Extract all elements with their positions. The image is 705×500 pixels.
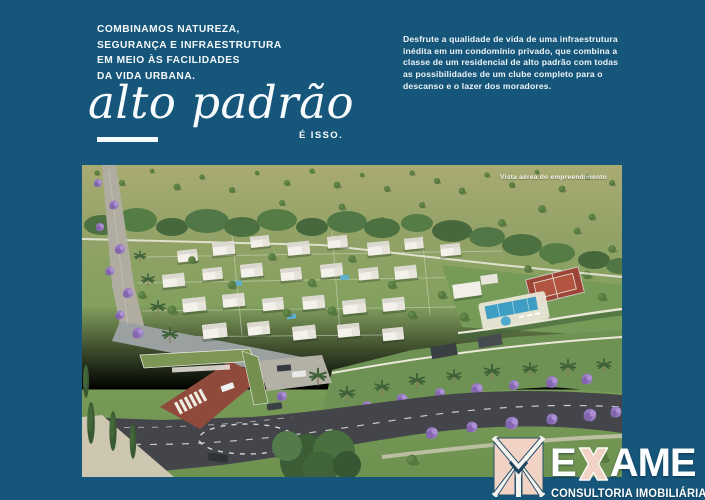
wordmark-x-icon xyxy=(578,447,609,481)
intro-line: COMBINAMOS NATUREZA, xyxy=(97,22,327,38)
description-paragraph: Desfrute a qualidade de vida de uma infr… xyxy=(403,34,622,94)
headline-tagline: É ISSO. xyxy=(299,130,343,141)
exame-emblem-icon xyxy=(492,436,545,497)
photo-caption: Vista aérea do empreendimento xyxy=(500,174,607,181)
intro-line: EM MEIO ÀS FACILIDADES xyxy=(97,53,327,69)
headline-underline xyxy=(97,137,158,142)
aerial-render-illustration xyxy=(82,165,622,477)
headline: alto padrão É ISSO. xyxy=(88,80,368,150)
ad-page: COMBINAMOS NATUREZA, SEGURANÇA E INFRAES… xyxy=(0,0,705,500)
headline-script-text: alto padrão xyxy=(88,80,368,125)
wordmark-letters-ame: AME xyxy=(610,445,696,482)
aerial-photo: Vista aérea do empreendimento xyxy=(82,165,622,477)
intro-text: COMBINAMOS NATUREZA, SEGURANÇA E INFRAES… xyxy=(97,22,327,84)
wordmark-letter-e: E xyxy=(550,445,576,482)
logo-subtitle: CONSULTORIA IMOBILIÁRIA xyxy=(551,486,705,500)
exame-wordmark: E AME xyxy=(550,445,696,485)
foreground-tree xyxy=(272,430,361,477)
intro-line: SEGURANÇA E INFRAESTRUTURA xyxy=(97,38,327,54)
